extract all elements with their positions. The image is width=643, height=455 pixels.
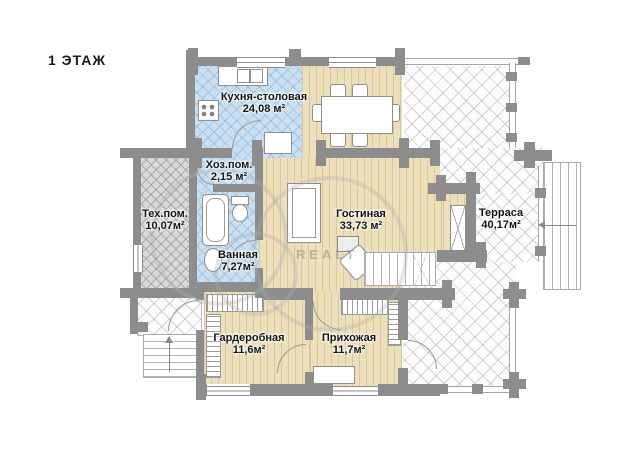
terrace-door-leaf (450, 205, 466, 252)
room-name: Гардеробная (213, 333, 284, 345)
wall-porch-stub (130, 322, 148, 332)
toilet-bowl (232, 204, 248, 222)
log-crossing (316, 140, 326, 166)
terrace-post (437, 384, 448, 394)
log-end (289, 49, 301, 58)
kitchen-sink-bowl-right (250, 69, 263, 83)
sofa-seat (292, 188, 316, 238)
bathtub-inner (206, 198, 225, 242)
room-area: 7,27м² (218, 262, 258, 274)
floor-title: 1 ЭТАЖ (48, 52, 106, 68)
sofa (287, 183, 321, 243)
interior-staircase (364, 252, 436, 286)
terrace-floor-upper (404, 66, 513, 148)
floor-plan-canvas: REALT 1 ЭТАЖ Кухня-столовая 24,08 м² Хоз… (0, 0, 643, 455)
terrace-post (506, 103, 517, 112)
terrace-post (506, 72, 517, 81)
room-area: 11,7м² (322, 345, 376, 357)
log-crossing (436, 175, 446, 201)
room-name: Тех.пом. (142, 209, 188, 221)
room-area: 40,17м² (479, 220, 523, 232)
bathtub (202, 194, 229, 246)
log-crossing (503, 379, 526, 389)
room-label-utility: Хоз.пом. 2,15 м² (206, 160, 253, 183)
hall-bench (313, 366, 355, 384)
terrace-post (472, 384, 483, 394)
window (207, 386, 250, 396)
room-label-hall: Прихожая 11,7м² (322, 333, 376, 356)
terrace-post (506, 133, 517, 142)
room-name: Терраса (479, 208, 523, 220)
room-label-living: Гостиная 33,73 м² (336, 209, 386, 232)
room-label-tech: Тех.пом. 10,07м² (142, 209, 188, 232)
log-crossing (514, 150, 552, 161)
wall-hall-right (398, 368, 408, 396)
wall-bottom (378, 384, 440, 396)
wall-bath-right (255, 158, 263, 240)
log-crossing (252, 140, 262, 166)
room-label-bath: Ванная 7,27м² (218, 250, 258, 273)
wall-wardrobe-hall (305, 298, 313, 340)
wall-wardrobe-left (196, 292, 204, 300)
room-area: 10,07м² (142, 221, 188, 233)
room-label-kitchen: Кухня-столовая 24,08 м² (221, 92, 307, 115)
terrace-edge-top (404, 58, 520, 65)
room-name: Хоз.пом. (206, 160, 253, 172)
wall-top (285, 57, 329, 66)
log-end (120, 288, 127, 298)
room-label-wardrobe: Гардеробная 11,6м² (213, 333, 284, 356)
wall-tech-bottom (127, 288, 204, 298)
wall-bottom (250, 384, 333, 396)
room-name: Прихожая (322, 333, 376, 345)
log-crossing (430, 140, 440, 166)
room-name: Кухня-столовая (221, 92, 307, 104)
wall-wardrobe-hall (305, 372, 313, 384)
wall-mid-left (133, 148, 232, 158)
log-crossing (196, 374, 206, 400)
log-crossing (476, 242, 486, 268)
kitchen-sink-bowl-left (237, 69, 250, 83)
deck-steps-arrow-head (538, 221, 545, 229)
log-crossing (188, 48, 198, 75)
log-crossing (503, 289, 526, 299)
terrace-post (535, 246, 546, 256)
staircase-winders (407, 253, 435, 285)
window (333, 386, 378, 396)
deck-steps (543, 162, 581, 290)
log-crossing (442, 280, 452, 308)
log-end (120, 148, 133, 158)
wall-bay-right (466, 194, 476, 254)
room-area: 24,08 м² (221, 104, 307, 116)
room-area: 33,73 м² (336, 221, 386, 233)
log-crossing (466, 172, 476, 197)
wall-house-left (133, 148, 141, 245)
room-area: 11,6м² (213, 345, 284, 357)
entry-steps-arrow-head (165, 336, 173, 343)
room-label-terrace: Терраса 40,17м² (479, 208, 523, 231)
wall-tech-right (189, 158, 197, 298)
terrace-post (535, 188, 546, 198)
deck-steps-arrow-line (545, 225, 576, 226)
wall-mid-right (321, 148, 440, 158)
window (237, 57, 285, 68)
room-name: Гостиная (336, 209, 386, 221)
wall-hall-right (398, 296, 408, 340)
dining-table (321, 96, 393, 134)
window (133, 245, 143, 272)
wall-utility-bath (213, 184, 259, 192)
log-crossing (192, 138, 202, 168)
stove (198, 100, 219, 121)
room-area: 2,15 м² (206, 172, 253, 184)
log-end (518, 57, 530, 65)
entry-steps-arrow-line (169, 342, 170, 372)
window (329, 57, 376, 68)
room-name: Ванная (218, 250, 258, 262)
log-crossing (395, 48, 405, 75)
log-crossing (399, 138, 409, 168)
kitchen-island (264, 132, 292, 154)
